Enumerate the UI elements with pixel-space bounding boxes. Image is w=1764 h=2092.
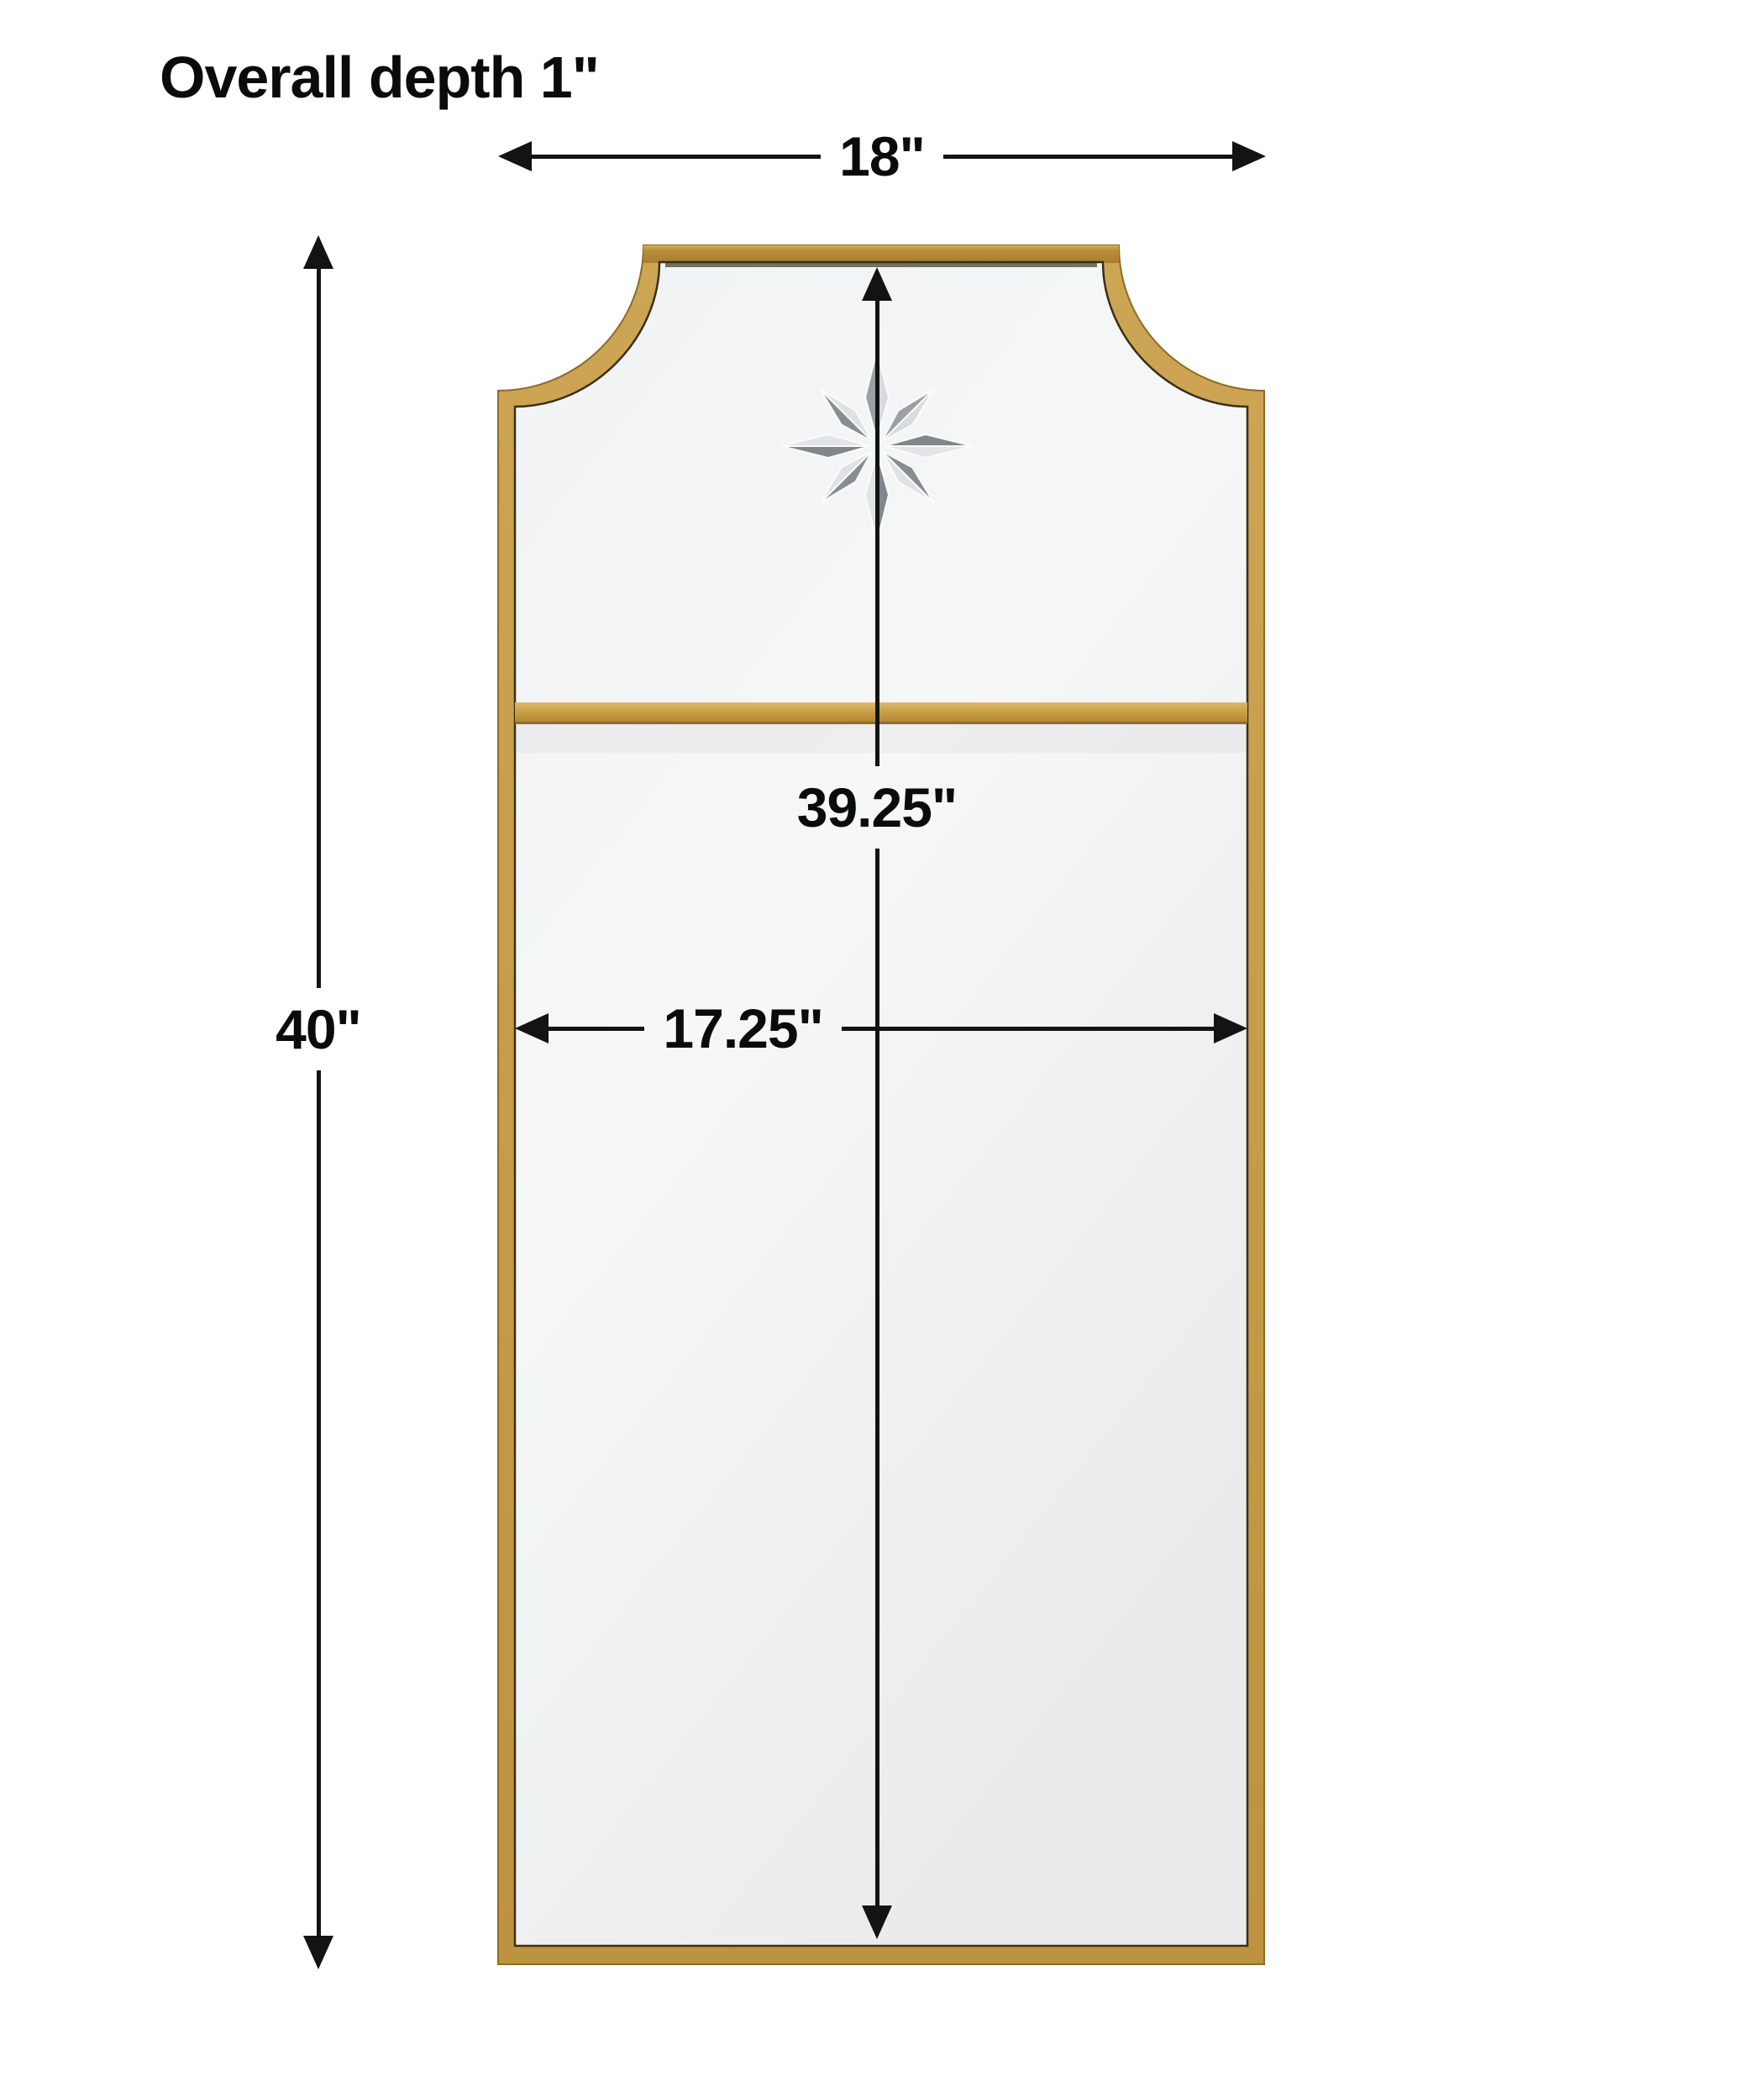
dimension-line — [549, 1027, 644, 1031]
arrowhead-left-icon — [498, 141, 532, 171]
arrowhead-down-icon — [862, 1905, 892, 1939]
dimension-label-overall-height: 40" — [276, 988, 361, 1070]
dimension-line — [532, 155, 821, 159]
dimension-line — [943, 155, 1232, 159]
dimension-label-inner-width: 17.25" — [644, 1001, 841, 1056]
dimension-line — [317, 269, 321, 988]
dimension-line — [842, 1027, 1214, 1031]
dimension-label-overall-width: 18" — [821, 129, 943, 184]
dimension-diagram: Overall depth 1" 18" 40" 39.25" 17.25" — [0, 0, 1764, 2092]
dimension-line — [875, 301, 879, 766]
dimension-label-inner-height: 39.25" — [797, 766, 957, 849]
arrowhead-up-icon — [303, 235, 333, 269]
dimension-inner-height: 39.25" — [789, 267, 965, 1939]
arrowhead-right-icon — [1232, 141, 1266, 171]
frame-top-cap — [643, 245, 1119, 263]
arrowhead-down-icon — [303, 1936, 333, 1969]
arrowhead-left-icon — [515, 1013, 549, 1043]
dimension-overall-height: 40" — [262, 235, 375, 1969]
dimension-inner-width: 17.25" — [515, 1007, 1247, 1050]
dimension-line — [317, 1070, 321, 1936]
arrowhead-right-icon — [1214, 1013, 1247, 1043]
page-title: Overall depth 1" — [160, 44, 599, 111]
dimension-overall-width: 18" — [498, 134, 1266, 178]
arrowhead-up-icon — [862, 267, 892, 301]
